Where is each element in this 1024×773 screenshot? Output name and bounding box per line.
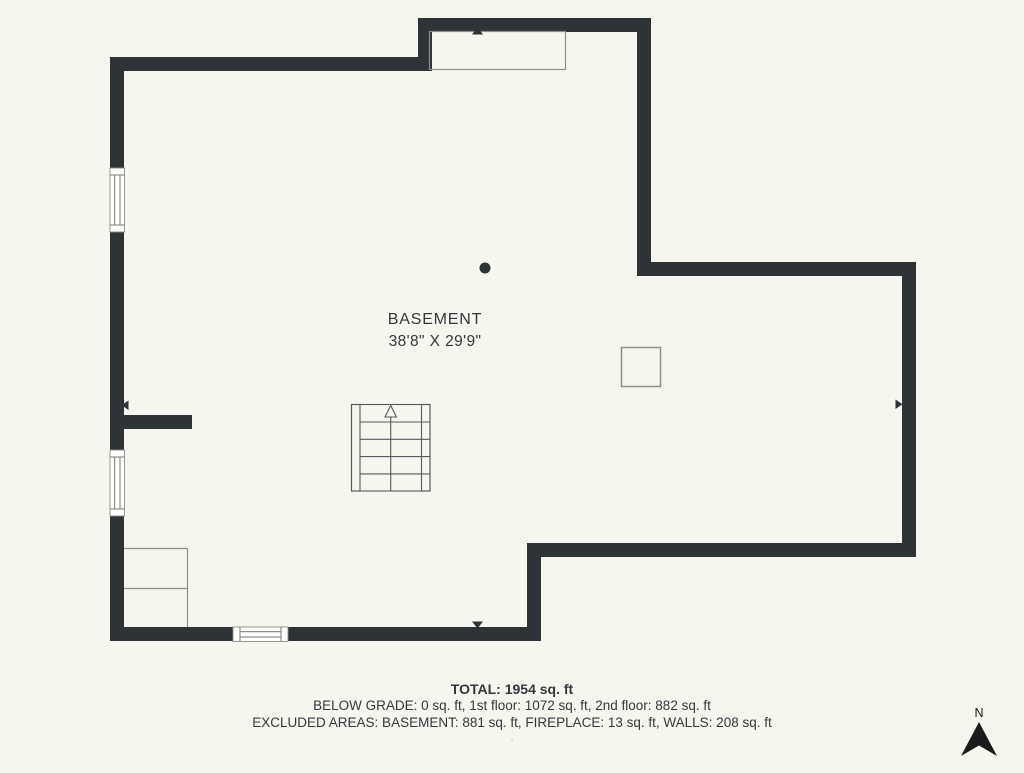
closet-outline — [124, 549, 188, 628]
window-left-upper — [110, 168, 125, 232]
top-landing-outline — [430, 32, 566, 70]
north-label: N — [957, 706, 1001, 720]
window-left-lower — [110, 450, 125, 516]
north-arrow-icon — [957, 722, 1001, 756]
footnote-dot: . — [0, 731, 1024, 745]
area-summary: TOTAL: 1954 sq. ft BELOW GRADE: 0 sq. ft… — [0, 681, 1024, 745]
floorplan-page: BASEMENT 38'8" X 29'9" TOTAL: 1954 sq. f… — [0, 0, 1024, 768]
support-column — [480, 263, 491, 274]
total-area-text: TOTAL: 1954 sq. ft — [0, 681, 1024, 698]
stair-rail-left — [352, 405, 361, 492]
exterior-walls — [117, 25, 909, 634]
stair-rail-right — [422, 405, 431, 492]
marker-arrow-right-icon — [896, 400, 903, 410]
interior-wall-stub — [110, 415, 192, 429]
below-grade-text: BELOW GRADE: 0 sq. ft, 1st floor: 1072 s… — [0, 698, 1024, 715]
compass: N — [957, 706, 1001, 756]
floorplan-drawing: BASEMENT 38'8" X 29'9" — [0, 0, 1024, 768]
utility-square — [622, 348, 661, 387]
room-dimensions: 38'8" X 29'9" — [389, 333, 482, 350]
excluded-areas-text: EXCLUDED AREAS: BASEMENT: 881 sq. ft, FI… — [0, 715, 1024, 732]
stair-up-arrow-icon — [385, 406, 396, 418]
room-label: BASEMENT — [388, 311, 482, 328]
window-bottom — [233, 627, 288, 642]
staircase — [352, 405, 431, 492]
